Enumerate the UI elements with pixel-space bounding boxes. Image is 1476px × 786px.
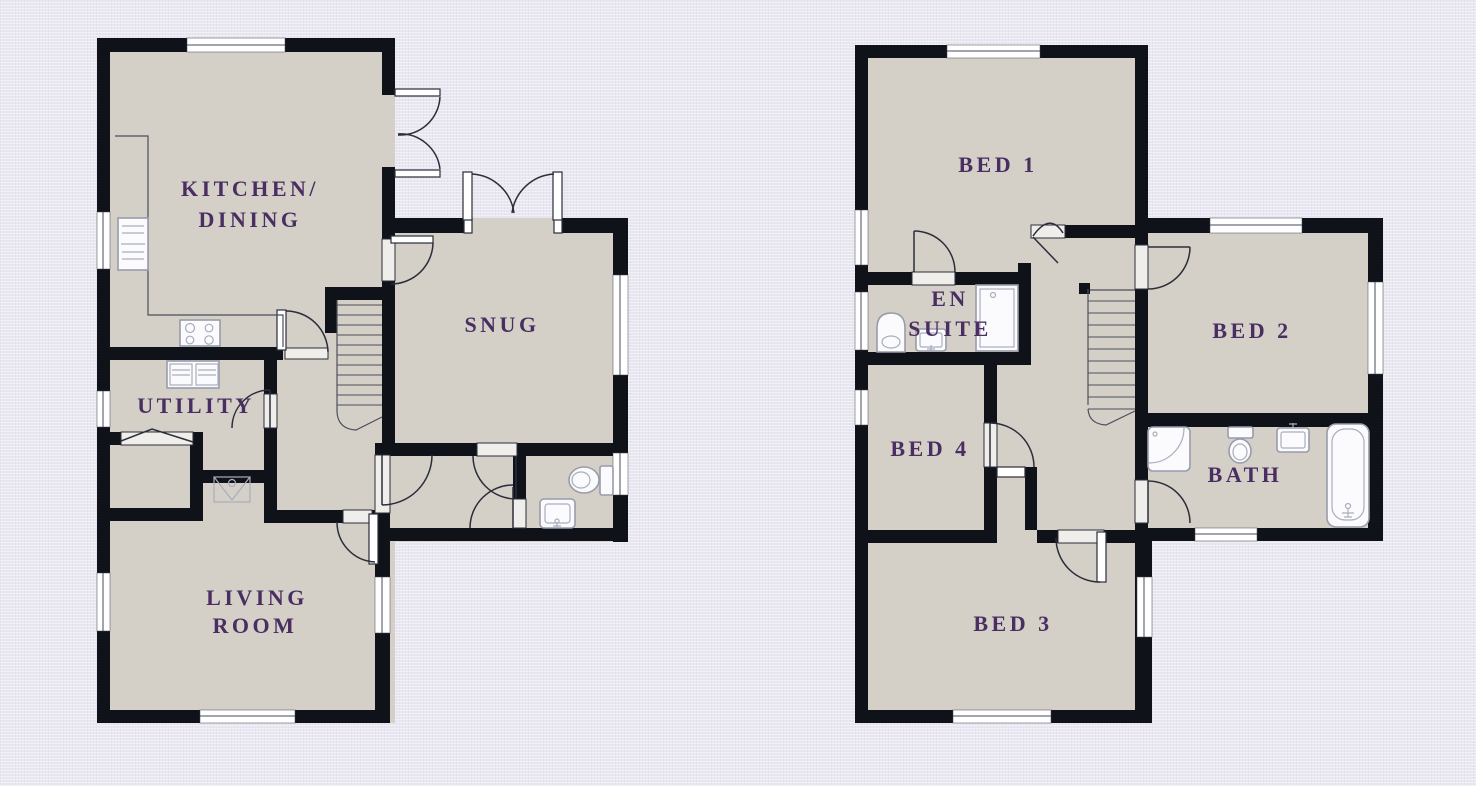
bed4-label: BED 4 (890, 436, 969, 461)
en-suite-toilet-icon (877, 313, 905, 352)
kitchen-dining-label-line2: DINING (199, 207, 302, 232)
window (1368, 282, 1383, 374)
living-room-label-line2: ROOM (213, 613, 298, 638)
first-room-fills (855, 45, 1383, 723)
window (1195, 528, 1257, 541)
utility-label: UTILITY (137, 393, 254, 418)
snug-label: SNUG (464, 312, 539, 337)
floor-plan-page: KITCHEN/ DINING SNUG UTILITY LIVING ROOM (0, 0, 1476, 786)
tall-appliance-icon (118, 218, 148, 270)
french-doors-kitchen-icon (395, 89, 440, 177)
first-floor-plan: BED 1 EN SUITE BED 2 BED 4 BATH BED 3 (855, 45, 1383, 723)
wc-basin-icon (540, 499, 575, 528)
bed2-label: BED 2 (1212, 318, 1291, 343)
en-suite-label-line2: SUITE (908, 316, 992, 341)
window (855, 210, 868, 265)
hob-icon (180, 320, 220, 346)
bath-label: BATH (1208, 462, 1283, 487)
window (855, 292, 868, 350)
living-room-label-line1: LIVING (206, 585, 308, 610)
floor-plan-canvas: KITCHEN/ DINING SNUG UTILITY LIVING ROOM (0, 0, 1476, 786)
window (97, 391, 110, 427)
window (375, 577, 390, 633)
window (855, 390, 868, 425)
bathtub-icon (1327, 424, 1369, 527)
window (947, 45, 1040, 58)
window (613, 275, 628, 375)
bed3-label: BED 3 (973, 611, 1052, 636)
window (200, 710, 295, 723)
window (97, 212, 110, 269)
wc-toilet-icon (569, 466, 613, 495)
window (97, 573, 110, 631)
window (953, 710, 1051, 723)
kitchen-dining-label-line1: KITCHEN/ (181, 176, 319, 201)
bath-basin-icon (1277, 423, 1309, 452)
window (1137, 577, 1152, 637)
cupboard-door (997, 467, 1025, 477)
ground-floor-plan: KITCHEN/ DINING SNUG UTILITY LIVING ROOM (97, 38, 628, 723)
bath-toilet-icon (1228, 427, 1253, 463)
window (613, 453, 628, 495)
bed1-label: BED 1 (958, 152, 1037, 177)
window (1210, 218, 1302, 233)
utility-appliances-icon (167, 361, 219, 388)
corner-shower-icon (1148, 427, 1190, 471)
en-suite-label-line1: EN (931, 286, 969, 311)
window (187, 38, 285, 52)
